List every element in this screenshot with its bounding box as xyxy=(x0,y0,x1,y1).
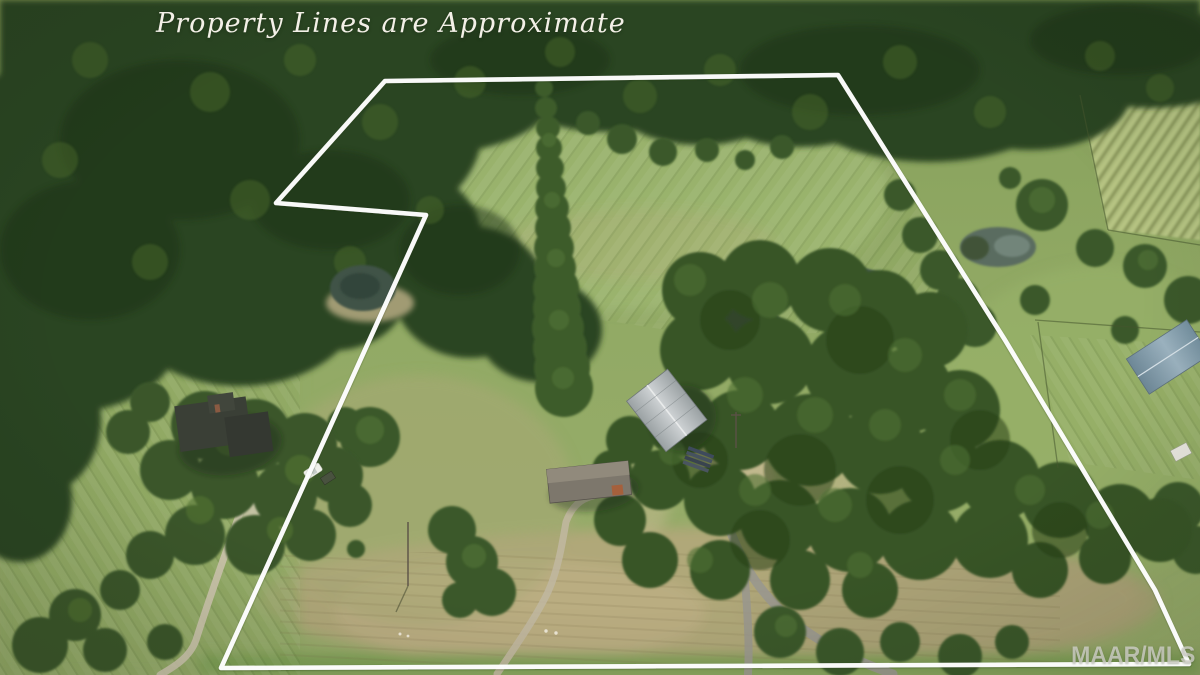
disclaimer-text: Property Lines are Approximate xyxy=(156,8,716,39)
vignette xyxy=(0,0,1200,675)
mls-watermark: MAAR/MLS xyxy=(1071,642,1195,670)
aerial-photo: Property Lines are Approximate MAAR/MLS xyxy=(0,0,1200,675)
aerial-scene xyxy=(0,0,1200,675)
